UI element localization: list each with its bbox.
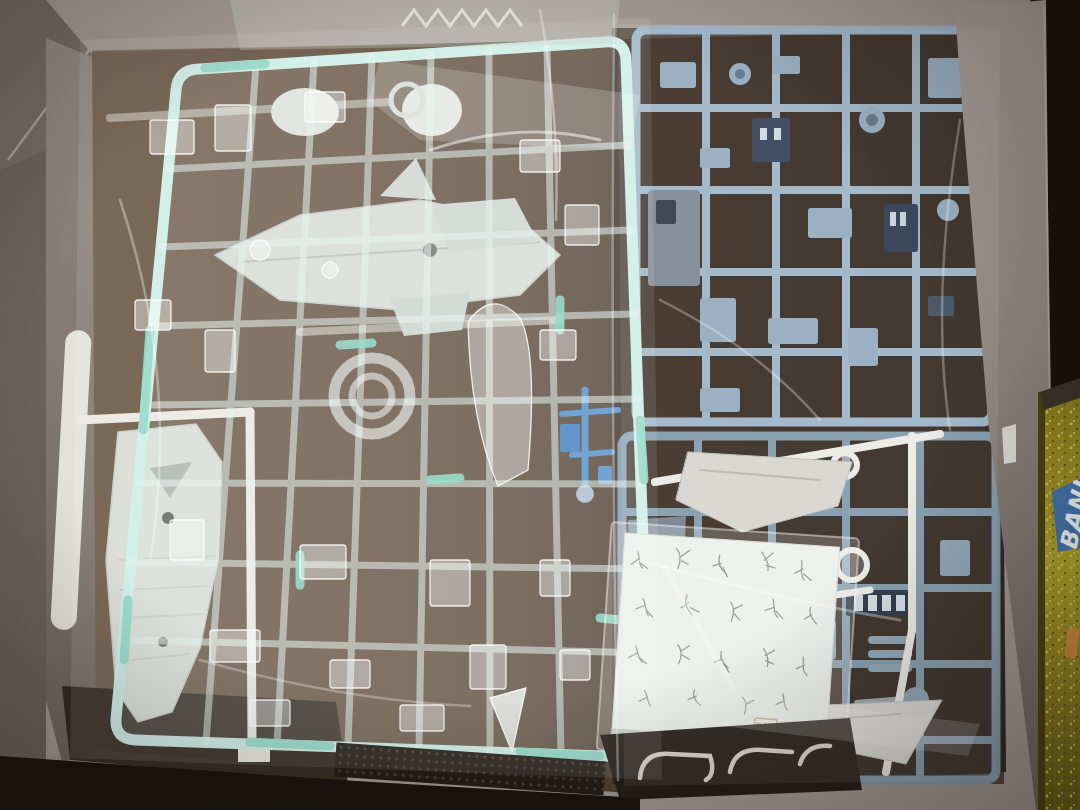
photo-scene: BAN DAI BANDAI — [0, 0, 1080, 810]
vignette-overlay — [0, 0, 1080, 810]
kit-box-photo: BAN DAI BANDAI — [0, 0, 1080, 810]
